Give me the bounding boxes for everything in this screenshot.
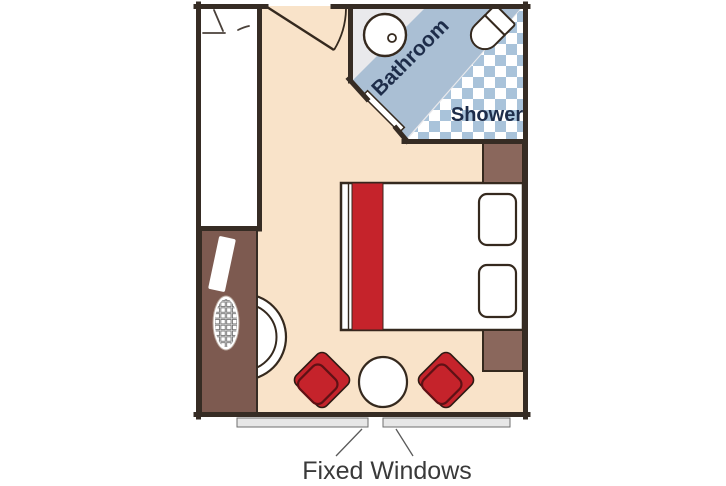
window-left xyxy=(237,418,368,427)
floor-plan-canvas: Bathroom Shower Fixed Windows xyxy=(0,0,726,486)
bed xyxy=(341,183,523,330)
cabin-floor-plan: Bathroom Shower Fixed Windows xyxy=(0,0,726,486)
leader-line-left xyxy=(336,429,362,456)
bed-runner xyxy=(352,183,383,330)
fixed-windows-label: Fixed Windows xyxy=(302,457,472,485)
pillow-bottom xyxy=(479,265,516,317)
window-right xyxy=(383,418,510,427)
shower-label: Shower xyxy=(451,104,523,126)
phone-keypad-icon xyxy=(213,296,239,350)
leader-line-right xyxy=(396,429,413,456)
wardrobe xyxy=(201,6,257,229)
sink-icon xyxy=(364,14,406,56)
nightstand-bottom xyxy=(483,330,523,371)
sink-drain-icon xyxy=(388,34,396,42)
pillow-top xyxy=(479,194,516,245)
coffee-table xyxy=(359,357,407,407)
nightstand-top xyxy=(483,142,523,183)
